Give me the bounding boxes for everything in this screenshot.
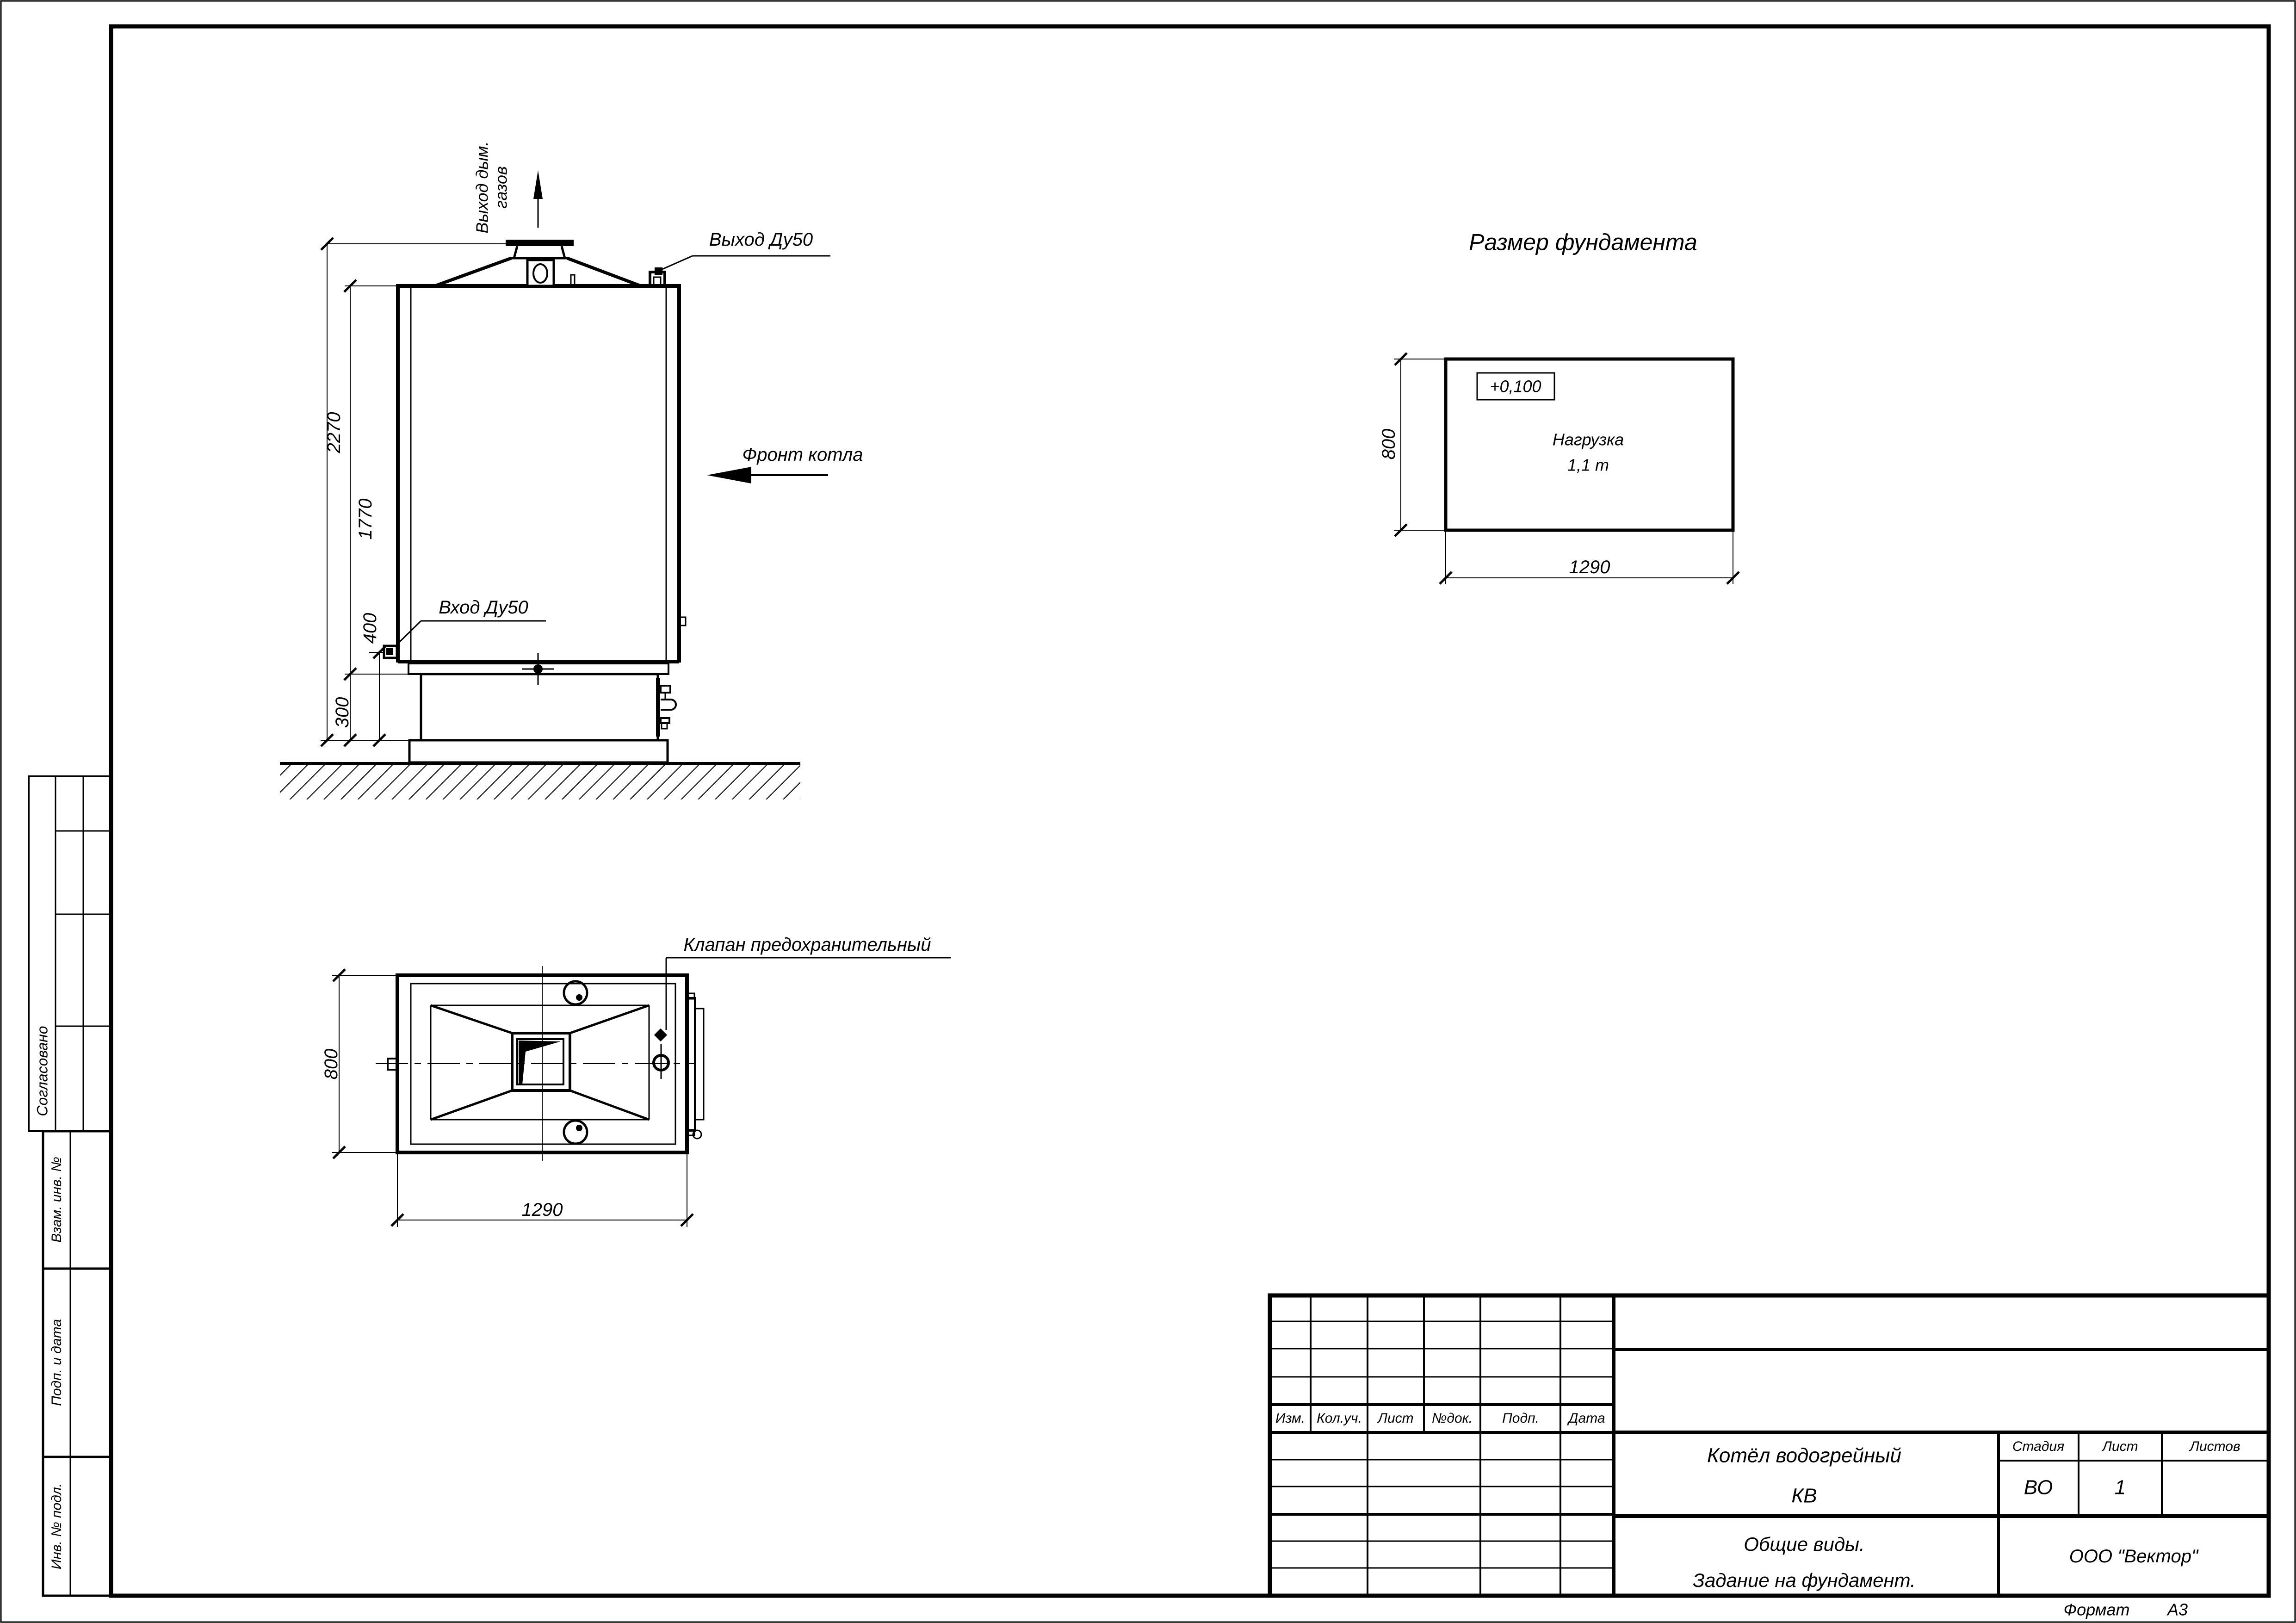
sheet-header: Лист <box>2102 1439 2138 1455</box>
elevation-mark: +0,100 <box>1490 377 1541 396</box>
plan-dim-800: 800 <box>321 1049 342 1080</box>
burner-pipe <box>661 700 676 710</box>
plinth <box>421 674 658 740</box>
rev-header-data: Дата <box>1568 1411 1605 1427</box>
drawing-linework <box>0 0 2296 1623</box>
doc-title-line2: КВ <box>1791 1485 1817 1508</box>
company-name: ООО "Вектор" <box>2069 1546 2198 1567</box>
hole-bottom <box>564 1121 587 1144</box>
format-value: А3 <box>2167 1600 2188 1619</box>
load-label-line2: 1,1 т <box>1567 455 1609 474</box>
dim-300: 300 <box>332 697 353 728</box>
hole-top <box>564 981 587 1004</box>
rev-header-izm: Изм. <box>1275 1411 1305 1427</box>
opening-shade <box>519 1041 561 1084</box>
foundation-title: Размер фундамента <box>1469 229 1697 256</box>
hood-left-slope <box>435 258 511 286</box>
stamp-sign-date: Подп. и дата <box>49 1319 65 1406</box>
stage-value: ВО <box>2024 1476 2053 1500</box>
doc-subtitle-line1: Общие виды. <box>1744 1533 1865 1555</box>
rev-header-list: Лист <box>1378 1411 1413 1427</box>
safety-valve-label: Клапан предохранительный <box>683 934 931 955</box>
plan-dim-1290: 1290 <box>522 1199 563 1220</box>
dim-1770: 1770 <box>355 499 376 540</box>
flue-gas-label: Выход дым. газов <box>473 141 511 233</box>
flue-gas-label-line1: Выход дым. <box>473 141 492 233</box>
chimney-flange <box>506 240 574 246</box>
stamp-approved: Согласовано <box>34 1026 51 1116</box>
dim-2270: 2270 <box>323 412 345 453</box>
outlet-label: Выход Ду50 <box>709 229 813 250</box>
stamp-replaced-inv: Взам. инв. № <box>49 1157 65 1243</box>
dim-ticks <box>321 238 385 746</box>
rev-header-koluch: Кол.уч. <box>1317 1411 1362 1427</box>
hood-right-slope <box>567 258 641 286</box>
sheet-value: 1 <box>2115 1476 2126 1500</box>
foundation-dim-800: 800 <box>1378 429 1399 460</box>
format-label: Формат <box>2064 1600 2130 1619</box>
sheets-header: Листов <box>2190 1439 2240 1455</box>
doc-subtitle-line2: Задание на фундамент. <box>1693 1569 1916 1592</box>
main-frame <box>111 26 2269 1596</box>
stamp-orig-inv: Инв. № подл. <box>49 1483 65 1569</box>
front-view <box>280 170 830 799</box>
valve-point <box>654 1028 667 1041</box>
front-of-boiler-label: Фронт котла <box>742 444 863 465</box>
burner-plate <box>656 678 660 737</box>
drawing-sheet: Выход дым. газов Выход Ду50 Фронт котла … <box>0 0 2296 1623</box>
plan-view <box>332 958 951 1227</box>
flue-arrow <box>533 170 543 199</box>
dim-400: 400 <box>359 613 381 644</box>
foundation-dim-1290: 1290 <box>1569 557 1610 578</box>
foundation-slab <box>409 740 668 762</box>
side-stamp-lines <box>29 776 111 1596</box>
foundation-view <box>1394 353 1739 584</box>
rev-header-ndok: №док. <box>1432 1411 1473 1427</box>
ground-hatch <box>280 764 800 799</box>
outlet-leader <box>661 256 693 270</box>
stage-header: Стадия <box>2012 1439 2064 1455</box>
front-arrow <box>707 467 751 483</box>
flue-gas-label-line2: газов <box>492 141 511 233</box>
doc-title-line1: Котёл водогрейный <box>1707 1444 1901 1468</box>
load-label-line1: Нагрузка <box>1553 430 1624 449</box>
inlet-label: Вход Ду50 <box>439 597 528 618</box>
rev-header-podp: Подп. <box>1502 1411 1539 1427</box>
